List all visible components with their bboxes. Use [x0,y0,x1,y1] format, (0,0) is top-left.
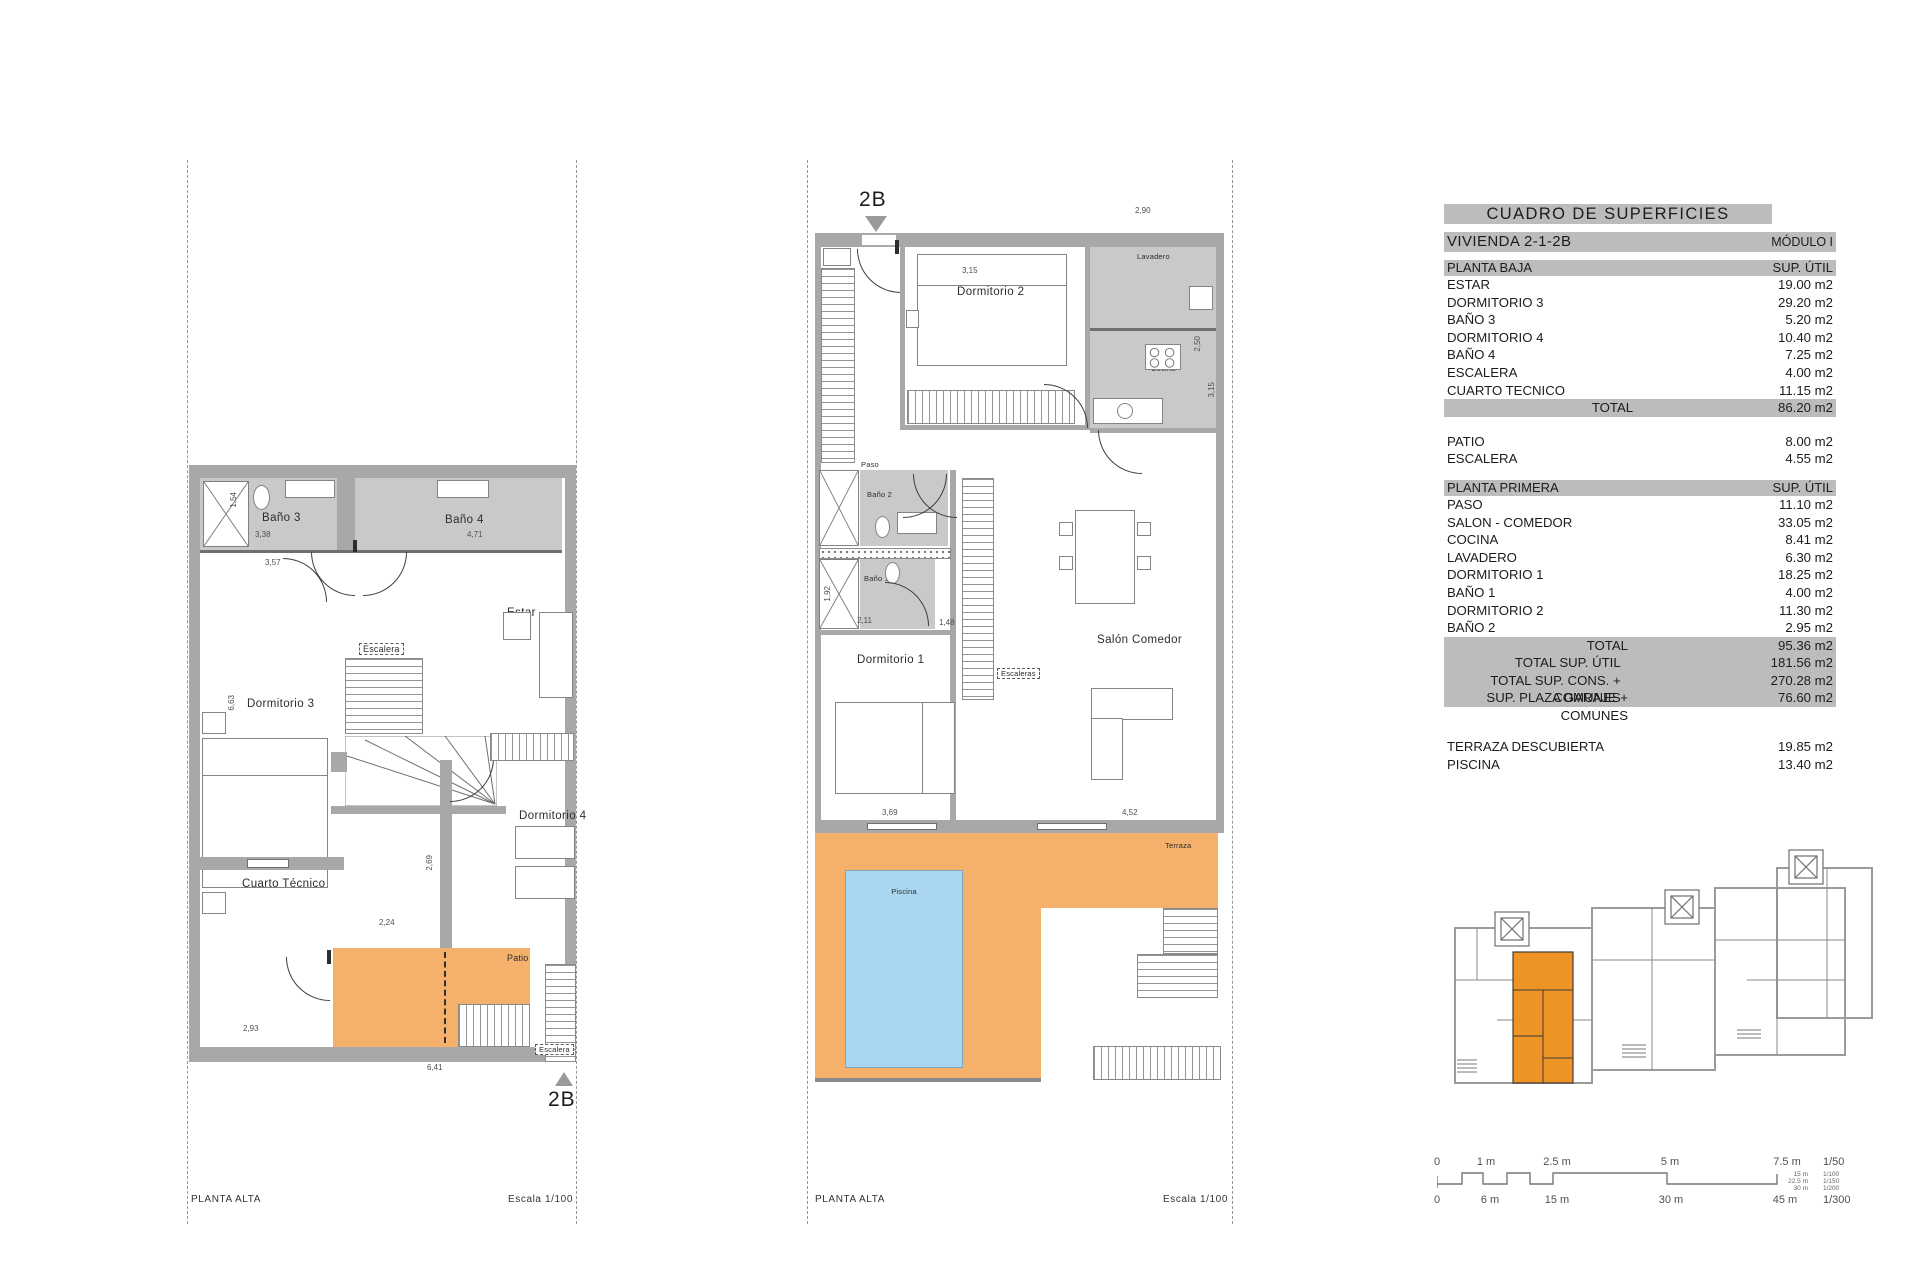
center-floor-plan: 2B 2,90 3,15 Dormitorio 2 Lavadero Cocin… [807,160,1233,1225]
pillar [331,752,347,772]
total-label: SUP. PLAZA GARAJE + COMUNES [1447,689,1778,707]
section-label: PLANTA PRIMERA [1447,480,1559,496]
room-label-piscina: Piscina [845,887,963,896]
section-col: SUP. ÚTIL [1773,260,1833,276]
sofa [1091,718,1123,780]
module-name: MÓDULO I [1771,232,1833,252]
scale-mid-ratio: 1/200 [1823,1185,1839,1192]
total-value: 86.20 m2 [1778,399,1833,417]
door-leaf [353,540,357,552]
total-value: 270.28 m2 [1771,672,1833,690]
room-label-bano3: Baño 3 [262,512,301,524]
row-value: 29.20 m2 [1778,294,1833,312]
bed [835,702,955,794]
room-label-salon: Salón Comedor [1097,634,1182,646]
swimming-pool [845,870,963,1068]
door-leaf [327,950,331,964]
row-value: 13.40 m2 [1778,756,1833,774]
scale-tick-label: 2.5 m [1537,1156,1577,1168]
dimension: 3,38 [255,530,271,539]
boundary-dashed-line [807,160,808,1224]
row-value: 6.30 m2 [1785,549,1833,567]
section-header-planta-baja: PLANTA BAJA SUP. ÚTIL [1444,260,1836,276]
dining-table [1075,510,1135,604]
scale-tick-label: 5 m [1652,1156,1688,1168]
row-label: ESCALERA [1447,364,1517,382]
row-value: 19.00 m2 [1778,276,1833,294]
total-value: 76.60 m2 [1778,689,1833,707]
room-label-escalera-patio: Escalera [535,1044,574,1055]
wall [1216,233,1224,833]
scale-tick-label: 0 [1434,1194,1440,1206]
room-label-dormitorio3: Dormitorio 3 [247,698,314,710]
dimension: 3,15 [962,266,978,275]
table-row: COCINA8.41 m2 [1444,531,1836,549]
nightstand [202,712,226,734]
row-label: BAÑO 3 [1447,311,1495,329]
row-value: 11.10 m2 [1779,496,1833,514]
window [247,859,289,868]
sink-counter [437,480,489,498]
room-label-dormitorio2: Dormitorio 2 [957,286,1024,298]
table-row: BAÑO 14.00 m2 [1444,584,1836,602]
wall [189,465,576,478]
row-label: BAÑO 2 [1447,619,1495,637]
row-value: 5.20 m2 [1785,311,1833,329]
dimension: 2,90 [1135,206,1151,215]
row-value: 33.05 m2 [1778,514,1833,532]
scale-tick-label: 30 m [1653,1194,1689,1206]
dimension: 3,15 [1207,382,1216,398]
stair-strip [821,268,855,463]
closet [490,733,574,761]
nightstand [202,892,226,914]
section-marker-2b: 2B [859,188,887,212]
row-label: DORMITORIO 4 [1447,329,1543,347]
scale-mid-ratio: 1/150 [1823,1178,1839,1185]
table-row: CUARTO TECNICO11.15 m2 [1444,382,1836,400]
row-value: 4.00 m2 [1785,364,1833,382]
table-row: TERRAZA DESCUBIERTA19.85 m2 [1444,738,1836,756]
total-label: TOTAL SUP. ÚTIL [1447,654,1771,672]
scale-bar-line [1437,1169,1783,1191]
table-row: BAÑO 22.95 m2 [1444,619,1836,637]
armchair [503,612,531,640]
dimension: 1,48 [939,618,955,627]
table-total-row: TOTAL95.36 m2 [1444,637,1836,655]
table-row: ESTAR19.00 m2 [1444,276,1836,294]
total-label: TOTAL [1447,637,1778,655]
dimension: 4,71 [467,530,483,539]
row-label: BAÑO 1 [1447,584,1495,602]
dimension: 2,24 [379,918,395,927]
scale-tick-label: 7.5 m [1767,1156,1807,1168]
unit-name: VIVIENDA 2-1-2B [1447,232,1571,252]
row-label: SALON - COMEDOR [1447,514,1572,532]
row-label: PASO [1447,496,1483,514]
scale-mid-value: 15 m [1768,1171,1808,1178]
dimension: 3,57 [265,558,281,567]
row-label: CUARTO TECNICO [1447,382,1565,400]
patio-dashed-divider [444,952,446,1043]
total-label: TOTAL SUP. CONS. + COMUNES [1447,672,1771,690]
dimension: 1,92 [823,586,832,602]
dimension: 4,52 [1122,808,1138,817]
table-row: DORMITORIO 118.25 m2 [1444,566,1836,584]
row-value: 2.95 m2 [1785,619,1833,637]
table-total-row: TOTAL SUP. ÚTIL181.56 m2 [1444,654,1836,672]
row-label: PATIO [1447,433,1485,451]
highlighted-unit [1513,952,1573,1083]
table-row: PISCINA13.40 m2 [1444,756,1836,774]
dimension: 2,11 [857,616,872,625]
row-label: PISCINA [1447,756,1500,774]
section-marker-2b: 2B [548,1088,576,1112]
stair-strip [962,478,994,700]
door-arc [239,558,327,646]
table-row: BAÑO 47.25 m2 [1444,346,1836,364]
plan-title: PLANTA ALTA [815,1194,885,1205]
total-value: 95.36 m2 [1778,637,1833,655]
room-label-bano4: Baño 4 [445,514,484,526]
chair [1059,522,1073,536]
stove [1145,344,1181,370]
dimension: 2,93 [243,1024,259,1033]
row-value: 4.00 m2 [1785,584,1833,602]
wall [900,247,905,430]
room-label-terraza: Terraza [1165,841,1191,850]
terrace-stair [1137,954,1218,998]
wall [189,465,200,1062]
bed [917,254,1067,366]
table-row: ESCALERA4.00 m2 [1444,364,1836,382]
table-row: PATIO8.00 m2 [1444,433,1836,451]
surface-table: CUADRO DE SUPERFICIES VIVIENDA 2-1-2B MÓ… [1444,204,1836,773]
total-label: TOTAL [1447,399,1778,417]
section-marker-arrow [555,1072,573,1086]
bed [515,826,575,859]
nightstand [906,310,919,328]
room-label-escalera: Escalera [359,643,404,655]
row-value: 10.40 m2 [1778,329,1833,347]
dimension: 1,54 [229,492,238,508]
row-value: 11.30 m2 [1779,602,1833,620]
scale-mid-value: 30 m [1768,1185,1808,1192]
row-label: ESCALERA [1447,450,1517,468]
row-value: 8.41 m2 [1785,531,1833,549]
table-row: DORMITORIO 410.40 m2 [1444,329,1836,347]
dimension: 6,41 [427,1063,443,1072]
entry-opening [862,235,896,245]
row-label: ESTAR [1447,276,1490,294]
row-label: LAVADERO [1447,549,1517,567]
sink-counter [285,480,335,498]
graphic-scale-bar: 0 1 m 2.5 m 5 m 7.5 m 1/50 15 m 22.5 m 3… [1437,1156,1867,1216]
wall [189,1047,576,1062]
sofa [539,612,573,698]
table-row: ESCALERA4.55 m2 [1444,450,1836,468]
row-value: 11.15 m2 [1779,382,1833,400]
wall [819,630,953,635]
table-row: SALON - COMEDOR33.05 m2 [1444,514,1836,532]
scale-ratio-label: 1/300 [1823,1194,1851,1206]
scale-tick-label: 15 m [1537,1194,1577,1206]
toilet [885,562,900,584]
row-label: BAÑO 4 [1447,346,1495,364]
plan-scale: Escala 1/100 [487,1194,573,1205]
table-row: DORMITORIO 211.30 m2 [1444,602,1836,620]
scale-mid-ratio: 1/100 [1823,1171,1839,1178]
chair [1059,556,1073,570]
boundary-dashed-line [187,160,188,1224]
section-marker-arrow [865,216,887,232]
section-label: PLANTA BAJA [1447,260,1532,276]
site-key-plan [1437,840,1882,1090]
room-label-bano2: Baño 2 [867,490,892,499]
row-label: COCINA [1447,531,1498,549]
scale-tick-label: 0 [1434,1156,1440,1168]
scale-ratio-label: 1/50 [1823,1156,1844,1168]
table-unit-row: VIVIENDA 2-1-2B MÓDULO I [1444,232,1836,252]
table-row: BAÑO 35.20 m2 [1444,311,1836,329]
dimension: 6,63 [227,695,236,711]
toilet [875,516,890,538]
total-value: 181.56 m2 [1771,654,1833,672]
row-value: 19.85 m2 [1778,738,1833,756]
table-total-row: TOTAL SUP. CONS. + COMUNES270.28 m2 [1444,672,1836,690]
scale-tick-label: 45 m [1767,1194,1803,1206]
row-value: 8.00 m2 [1785,433,1833,451]
terrace-door [867,823,937,830]
scale-tick-label: 6 m [1474,1194,1506,1206]
scale-mid-value: 22.5 m [1768,1178,1808,1185]
room-label-lavadero: Lavadero [1137,252,1170,261]
scale-tick-label: 1 m [1470,1156,1502,1168]
plan-title: PLANTA ALTA [191,1194,261,1205]
room-label-cuarto-tecnico: Cuarto Técnico [242,878,325,890]
sink [1117,403,1133,419]
terrace-door [1037,823,1107,830]
table-title: CUADRO DE SUPERFICIES [1444,204,1772,224]
washer [1189,286,1213,310]
dimension: 3,69 [882,808,898,817]
row-label: DORMITORIO 3 [1447,294,1543,312]
mosaic-band [819,548,951,559]
row-value: 4.55 m2 [1785,450,1833,468]
stair-flight [345,658,423,734]
boundary-dashed-line [1232,160,1233,1224]
table-total-row: TOTAL86.20 m2 [1444,399,1836,417]
table-row: PASO11.10 m2 [1444,496,1836,514]
door-leaf [895,240,899,254]
room-label-paso: Paso [861,460,879,469]
patio-stair [458,1004,530,1047]
room-label-dormitorio4: Dormitorio 4 [519,810,586,822]
boundary-dashed-line [576,160,577,1224]
terraza-edge [815,1078,1041,1082]
wall-line [1090,328,1216,331]
wall [331,806,506,814]
chair [1137,522,1151,536]
plan-scale: Escala 1/100 [1144,1194,1228,1205]
bed [515,866,575,899]
row-value: 18.25 m2 [1778,566,1833,584]
sofa [1091,688,1173,720]
row-label: TERRAZA DESCUBIERTA [1447,738,1604,756]
room-label-patio: Patio [507,953,529,963]
section-col: SUP. ÚTIL [1773,480,1833,496]
table-row: DORMITORIO 329.20 m2 [1444,294,1836,312]
chair [1137,556,1151,570]
table-total-row: SUP. PLAZA GARAJE + COMUNES76.60 m2 [1444,689,1836,707]
row-label: DORMITORIO 1 [1447,566,1543,584]
shower [819,470,859,546]
section-header-planta-primera: PLANTA PRIMERA SUP. ÚTIL [1444,480,1836,496]
terrace-stair [1093,1046,1221,1080]
dimension: 2,50 [1193,336,1202,352]
niche [823,248,851,266]
row-label: DORMITORIO 2 [1447,602,1543,620]
dimension: 2,69 [425,855,434,871]
toilet [253,485,270,510]
room-label-escaleras: Escaleras [997,668,1040,679]
room-label-dormitorio1: Dormitorio 1 [857,654,924,666]
row-value: 7.25 m2 [1785,346,1833,364]
terrace-stair [1163,908,1218,954]
shower [203,481,249,547]
left-floor-plan: Baño 3 Baño 4 1,54 3,38 4,71 3,57 Estar … [187,160,577,1225]
table-row: LAVADERO6.30 m2 [1444,549,1836,567]
